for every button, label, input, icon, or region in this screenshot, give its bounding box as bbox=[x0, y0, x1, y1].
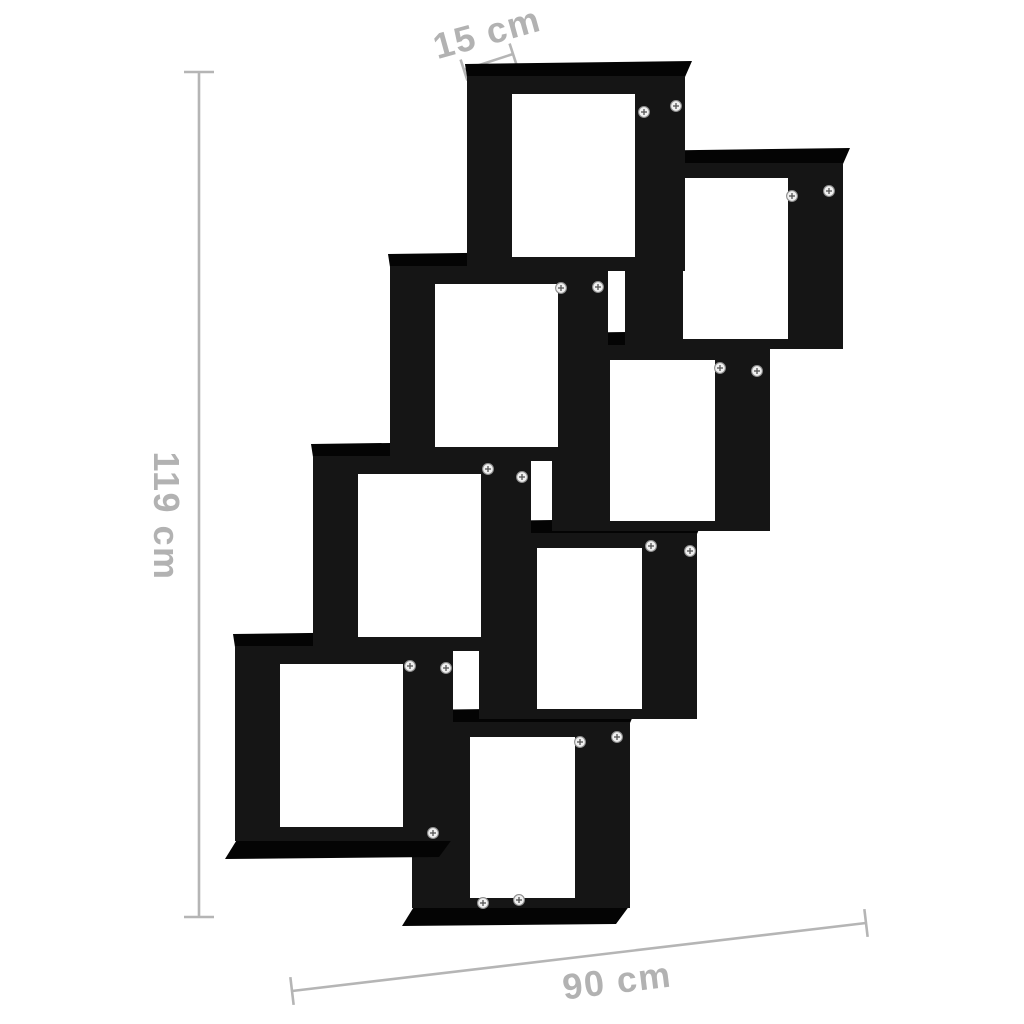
screw-icon bbox=[478, 898, 489, 909]
screw-icon bbox=[483, 464, 494, 475]
shelf-cube-mid-left bbox=[388, 251, 615, 461]
screw-icon bbox=[752, 366, 763, 377]
shelf-cube-top-center bbox=[465, 61, 692, 271]
shelf-cube-bottom-left bbox=[225, 631, 460, 859]
screw-icon bbox=[715, 363, 726, 374]
screw-icon bbox=[556, 283, 567, 294]
screw-icon bbox=[575, 737, 586, 748]
cube-shelf bbox=[225, 61, 850, 926]
screw-icon bbox=[517, 472, 528, 483]
screw-icon bbox=[639, 107, 650, 118]
screw-icon bbox=[405, 661, 416, 672]
screw-icon bbox=[514, 895, 525, 906]
product-dimension-image: 15 cm 119 cm 90 cm bbox=[0, 0, 1024, 1024]
shelf-cube-mid-low-left bbox=[311, 441, 538, 651]
height-dimension-line bbox=[184, 72, 214, 917]
screw-icon bbox=[593, 282, 604, 293]
screw-icon bbox=[824, 186, 835, 197]
screw-icon bbox=[685, 546, 696, 557]
screw-icon bbox=[646, 541, 657, 552]
screw-icon bbox=[671, 101, 682, 112]
height-dimension-label: 119 cm bbox=[145, 451, 187, 580]
screw-icon bbox=[441, 663, 452, 674]
screw-icon bbox=[612, 732, 623, 743]
screw-icon bbox=[428, 828, 439, 839]
screw-icon bbox=[787, 191, 798, 202]
